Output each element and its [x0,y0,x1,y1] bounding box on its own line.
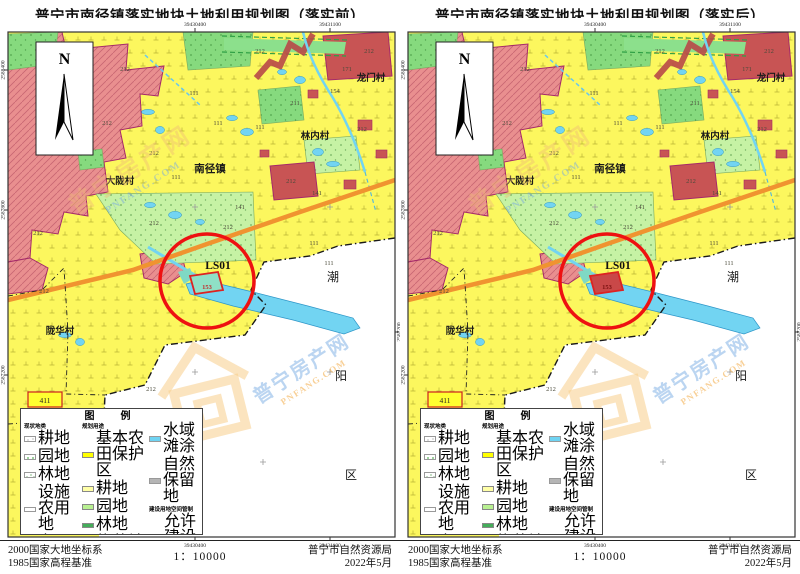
parcel-code: 212 [255,48,265,55]
datum-line1: 2000国家大地坐标系 [408,544,574,557]
place-label: 陇华村 [446,325,475,337]
pond [695,76,706,83]
legend-planned-item: 林地 [82,517,146,533]
parcel-code: 212 [433,230,443,237]
legend-water-label: 自然保留地 [163,457,203,505]
parcel-code: 211 [690,100,700,107]
legend-current-item: 设施农用地 [24,485,79,533]
parcel-code: 111 [255,124,264,131]
legend-planned-swatch [82,452,94,458]
pond [476,338,485,345]
panel-before: 普宁市南径镇落实地块土地利用规划图（落实前） 153LS012122122121… [0,0,400,574]
map-scale: 1：10000 [574,544,627,564]
legend-planned-column: 规划用途基本农田保护区耕地园地林地牧草地其他农用地城镇用地农村居民点用地采矿用地… [82,423,146,535]
pond [241,128,254,135]
pond [727,161,740,166]
map-scale: 1：10000 [174,544,227,564]
panel-after: 普宁市南径镇落实地块土地利用规划图（落实后） 153LS012122122121… [400,0,800,574]
legend-control-item: 允许建设区 [549,514,603,535]
place-label: 阳 [335,369,347,383]
place-label: 龙门村 [756,72,786,84]
legend-control-label: 允许建设区 [164,514,203,535]
orchard-dots [183,32,253,70]
legend-water-swatch [149,478,161,484]
urban-patch [660,150,669,157]
parcel-code: 212 [120,66,130,73]
legend-current-item: 耕地 [424,431,479,447]
parcel-code: 212 [33,230,43,237]
parcel-code: 212 [364,48,374,55]
legend-current-item-swatch [24,436,36,442]
legend-current-item-label: 耕地 [438,431,470,447]
legend-planned-item: 园地 [82,499,146,515]
grid-label-left: 2587800 [401,200,407,220]
legend-current-item: 设施农用地 [424,485,479,533]
grid-label-left: 2587200 [1,365,7,385]
parcel-code: 111 [724,260,733,267]
parcel-411-code: 411 [440,396,451,405]
ls01-label: LS01 [205,260,231,272]
parcel-code: 111 [571,174,580,181]
urban-patch [708,90,718,98]
datum-info: 2000国家大地坐标系 1985国家高程基准 [408,544,574,570]
parcel-code: 111 [655,124,664,131]
orchard-dots [583,32,653,70]
parcel-code: 212 [357,126,367,133]
legend-control-column: 水域滩涂自然保留地建设用地空间管制允许建设区有条件建设区禁止建设区落实地块县界镇… [149,423,203,535]
pond [76,338,85,345]
legend-water-swatch [549,436,561,442]
parcel-code: 154 [730,88,741,95]
pond [142,109,155,114]
legend-current-item-label: 园地 [438,449,470,465]
pond [169,211,182,218]
pond [196,219,205,224]
place-label: 区 [745,468,757,482]
datum-line1: 2000国家大地坐标系 [8,544,174,557]
parcel-code: 111 [171,174,180,181]
parcel-411-code: 411 [40,396,51,405]
parcel-code: 212 [686,178,696,185]
urban-patch [376,150,387,158]
legend-control-label: 允许建设区 [564,514,603,535]
datum-line2: 1985国家高程基准 [8,557,174,570]
parcel-code: 141 [235,204,245,211]
place-label: 南径镇 [194,162,226,175]
legend-planned-swatch [82,504,94,510]
legend-columns: 现状地类耕地园地林地设施农用地交通用地坑塘水面城镇用地农村居民点用地采矿用地水工… [424,423,599,535]
legend-planned-item: 耕地 [482,481,546,497]
legend-planned-item: 园地 [482,499,546,515]
legend-water-swatch [549,478,561,484]
agency-info: 普宁市自然资源局 2022年5月 [227,544,393,570]
legend-planned-item: 基本农田保护区 [82,431,146,479]
legend-current-item-label: 林地 [438,467,470,483]
grid-label-right: 2587200 [797,322,800,342]
legend-current-column: 现状地类耕地园地林地设施农用地交通用地坑塘水面城镇用地农村居民点用地采矿用地水工… [24,423,79,535]
legend-current-item-label: 耕地 [38,431,70,447]
parcel-code: 212 [764,48,774,55]
urban-patch [344,180,356,189]
legend-planned-label: 耕地 [496,481,528,497]
pond [713,148,724,155]
place-label: 阳 [735,369,747,383]
parcel-code: 111 [589,90,598,97]
parcel-code: 212 [102,120,112,127]
parcel-code: 141 [312,190,322,197]
legend-water-label: 自然保留地 [563,457,603,505]
pond [227,115,238,120]
parcel-code: 171 [342,66,352,73]
north-label: N [459,51,471,68]
parcel-code: 111 [189,90,198,97]
legend-planned-swatch [82,486,94,492]
legend-current-item-label: 园地 [38,449,70,465]
legend-water-item: 水域滩涂 [149,423,203,455]
legend-planned-swatch [482,523,494,529]
grid-label-left: 2588400 [1,60,7,80]
datum-line2: 1985国家高程基准 [408,557,574,570]
north-label: N [59,51,71,68]
parcel-code: 154 [330,88,341,95]
pond [145,202,156,207]
parcel-code: 212 [623,224,633,231]
grid-label-top: 39431100 [319,22,341,28]
place-label: 潮 [727,269,739,284]
legend-current-item-swatch [424,472,436,478]
place-label: 龙门村 [356,72,386,84]
place-label: 南径镇 [594,162,626,175]
legend-planned-swatch [482,486,494,492]
parcel-code: 111 [309,240,318,247]
grid-label-top: 39431100 [719,22,741,28]
legend-planned-item: 林地 [482,517,546,533]
pond [545,202,556,207]
legend-current-item-swatch [424,507,436,513]
parcel-code: 212 [146,386,156,393]
pond [156,126,165,133]
grid-label-left: 2587200 [401,365,407,385]
agency-name: 普宁市自然资源局 [227,544,393,557]
footer: 2000国家大地坐标系 1985国家高程基准 1：10000 普宁市自然资源局 … [0,540,800,574]
legend-water-label: 水域滩涂 [563,423,603,455]
grid-label-left: 2587800 [1,200,7,220]
parcel-code: 212 [39,288,49,295]
legend-planned-swatch [482,504,494,510]
legend-planned-label: 基本农田保护区 [96,431,146,479]
place-label: 陇华村 [46,325,75,337]
place-label: 区 [345,468,357,482]
pond [641,128,654,135]
parcel-code: 212 [549,150,559,157]
parcel-code: 212 [439,288,449,295]
page: 普宁市南径镇落实地块土地利用规划图（落实前） 153LS012122122121… [0,0,800,574]
urban-area [323,32,392,80]
parcel-code: 212 [286,178,296,185]
parcel-code: 212 [149,150,159,157]
legend-current-item-swatch [24,507,36,513]
place-label: 大陇村 [506,175,535,187]
legend-planned-label: 耕地 [96,481,128,497]
legend-current-item-label: 林地 [38,467,70,483]
parcel-code: 212 [655,48,665,55]
parcel-code: 212 [149,220,159,227]
parcel-code: 141 [712,190,722,197]
footer-after: 2000国家大地坐标系 1985国家高程基准 1：10000 普宁市自然资源局 … [400,541,800,574]
legend-current-item-swatch [24,454,36,460]
legend-box: 图 例现状地类耕地园地林地设施农用地交通用地坑塘水面城镇用地农村居民点用地采矿用… [20,408,203,535]
legend-control-item: 允许建设区 [149,514,203,535]
legend-planned-label: 林地 [96,517,128,533]
map-date: 2022年5月 [627,557,793,570]
urban-patch [776,150,787,158]
legend-water-item: 自然保留地 [149,457,203,505]
legend-current-column: 现状地类耕地园地林地设施农用地交通用地坑塘水面城镇用地农村居民点用地采矿用地水工… [424,423,479,535]
parcel-code: 111 [324,260,333,267]
parcel-code: 111 [613,120,622,127]
legend-planned-label: 林地 [496,517,528,533]
legend-current-item: 耕地 [24,431,79,447]
north-arrow: N [436,42,493,155]
urban-patch [308,90,318,98]
pond [556,126,565,133]
pond [295,76,306,83]
pond [278,69,287,74]
legend-planned-label: 基本农田保护区 [496,431,546,479]
pond [678,69,687,74]
urban-patch [744,180,756,189]
datum-info: 2000国家大地坐标系 1985国家高程基准 [8,544,174,570]
place-label: 大陇村 [106,175,135,187]
place-label: 林内村 [301,130,330,142]
map-date: 2022年5月 [227,557,393,570]
legend-columns: 现状地类耕地园地林地设施农用地交通用地坑塘水面城镇用地农村居民点用地采矿用地水工… [24,423,199,535]
pond [569,211,582,218]
legend-current-item-swatch [424,454,436,460]
agency-name: 普宁市自然资源局 [627,544,793,557]
legend-current-item: 林地 [24,467,79,483]
parcel-code: 212 [546,386,556,393]
pond [542,109,555,114]
legend-box: 图 例现状地类耕地园地林地设施农用地交通用地坑塘水面城镇用地农村居民点用地采矿用… [420,408,603,535]
parcel-code: 111 [709,240,718,247]
legend-planned-item: 基本农田保护区 [482,431,546,479]
legend-planned-label: 园地 [496,499,528,515]
parcel-code: 212 [757,126,767,133]
legend-water-item: 自然保留地 [549,457,603,505]
pond [313,148,324,155]
legend-planned-swatch [482,452,494,458]
ls01-parcel-code: 153 [202,284,213,291]
legend-control-column: 水域滩涂自然保留地建设用地空间管制允许建设区有条件建设区禁止建设区落实地块县界镇… [549,423,603,535]
urban-patch [260,150,269,157]
grid-label-top: 39430400 [584,22,606,28]
legend-planned-swatch [82,523,94,529]
legend-current-item: 园地 [424,449,479,465]
place-label: 林内村 [701,130,730,142]
legend-planned-item: 耕地 [82,481,146,497]
parcel-code: 171 [742,66,752,73]
legend-water-label: 水域滩涂 [163,423,203,455]
legend-current-item-label: 设施农用地 [438,485,479,533]
footer-before: 2000国家大地坐标系 1985国家高程基准 1：10000 普宁市自然资源局 … [0,541,400,574]
grid-label-left: 2588400 [401,60,407,80]
pond [327,161,340,166]
legend-current-item-label: 设施农用地 [38,485,79,533]
legend-water-swatch [149,436,161,442]
parcel-code: 212 [549,220,559,227]
place-label: 潮 [327,269,339,284]
legend-current-item: 林地 [424,467,479,483]
urban-area [723,32,792,80]
ls01-parcel-code: 153 [602,284,613,291]
pond [596,219,605,224]
legend-current-item-swatch [424,436,436,442]
parcel-code: 141 [635,204,645,211]
legend-current-item-swatch [24,472,36,478]
north-arrow: N [36,42,93,155]
parcel-code: 212 [223,224,233,231]
parcel-code: 111 [213,120,222,127]
legend-water-item: 水域滩涂 [549,423,603,455]
parcel-code: 212 [520,66,530,73]
legend-planned-column: 规划用途基本农田保护区耕地园地林地牧草地其他农用地城镇用地农村居民点用地采矿用地… [482,423,546,535]
legend-planned-label: 园地 [96,499,128,515]
ls01-label: LS01 [605,260,631,272]
parcel-code: 211 [290,100,300,107]
agency-info: 普宁市自然资源局 2022年5月 [627,544,793,570]
legend-current-item: 园地 [24,449,79,465]
pond [627,115,638,120]
parcel-code: 212 [502,120,512,127]
grid-label-top: 39430400 [184,22,206,28]
